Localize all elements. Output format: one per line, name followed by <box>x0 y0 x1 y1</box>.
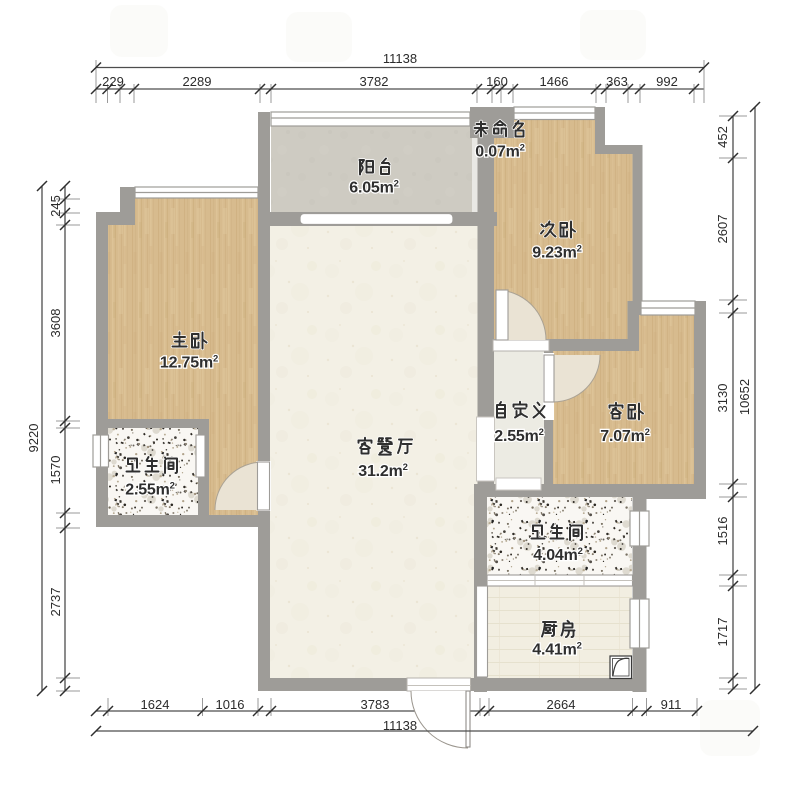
svg-text:2664: 2664 <box>547 697 576 712</box>
svg-text:3608: 3608 <box>48 309 63 338</box>
svg-text:31.2m2: 31.2m2 <box>358 462 407 480</box>
svg-text:1016: 1016 <box>216 697 245 712</box>
svg-text:3783: 3783 <box>361 697 390 712</box>
svg-text:229: 229 <box>102 74 124 89</box>
svg-text:1570: 1570 <box>48 456 63 485</box>
svg-text:1624: 1624 <box>141 697 170 712</box>
svg-text:0.07m2: 0.07m2 <box>475 143 524 161</box>
svg-text:245: 245 <box>48 195 63 217</box>
svg-text:2.55m2: 2.55m2 <box>494 427 543 445</box>
svg-text:452: 452 <box>715 126 730 148</box>
svg-text:2289: 2289 <box>183 74 212 89</box>
svg-text:992: 992 <box>656 74 678 89</box>
svg-text:2.55m2: 2.55m2 <box>125 481 174 499</box>
svg-text:11138: 11138 <box>383 51 417 66</box>
svg-text:10652: 10652 <box>737 379 752 415</box>
svg-text:2607: 2607 <box>715 215 730 244</box>
svg-text:160: 160 <box>486 74 508 89</box>
svg-text:3782: 3782 <box>360 74 389 89</box>
svg-text:2737: 2737 <box>48 588 63 617</box>
svg-text:4.41m2: 4.41m2 <box>532 641 581 659</box>
svg-text:7.07m2: 7.07m2 <box>600 427 649 445</box>
svg-text:3130: 3130 <box>715 384 730 413</box>
svg-text:1717: 1717 <box>715 618 730 647</box>
svg-text:363: 363 <box>606 74 628 89</box>
svg-text:4.04m2: 4.04m2 <box>533 546 582 564</box>
svg-text:11138: 11138 <box>383 718 417 733</box>
svg-text:6.05m2: 6.05m2 <box>349 179 398 197</box>
svg-text:1466: 1466 <box>540 74 569 89</box>
svg-text:9220: 9220 <box>26 424 41 453</box>
svg-text:1516: 1516 <box>715 517 730 546</box>
svg-text:12.75m2: 12.75m2 <box>160 354 218 372</box>
svg-text:9.23m2: 9.23m2 <box>532 244 581 262</box>
svg-text:911: 911 <box>661 697 682 712</box>
